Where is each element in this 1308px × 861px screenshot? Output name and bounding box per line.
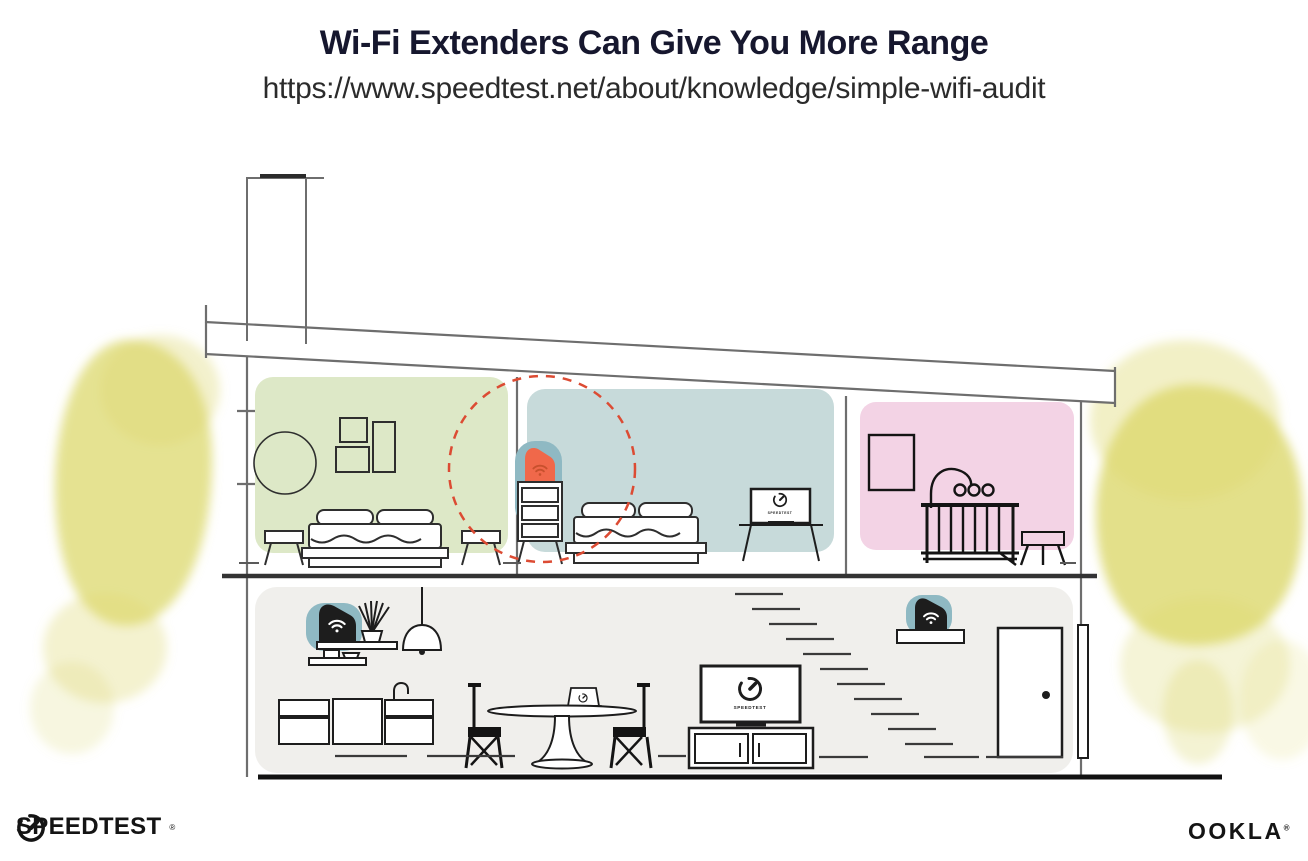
house-illustration: SPEEDTEST bbox=[0, 0, 1308, 861]
ookla-wordmark: OOKLA bbox=[1188, 818, 1284, 844]
tv-living-room: SPEEDTEST bbox=[689, 666, 813, 768]
shelf bbox=[897, 630, 964, 643]
tree-right bbox=[1090, 340, 1308, 764]
shelf bbox=[317, 642, 397, 649]
front-door bbox=[998, 628, 1062, 757]
infographic-canvas: Wi-Fi Extenders Can Give You More Range … bbox=[0, 0, 1308, 861]
speedtest-gauge-icon bbox=[16, 813, 46, 843]
wall-post bbox=[1078, 625, 1088, 758]
registered-mark: ® bbox=[1284, 823, 1292, 832]
tv-console bbox=[689, 728, 813, 768]
speedtest-logo: SPEEDTEST® bbox=[16, 813, 175, 841]
tv-screen-label: SPEEDTEST bbox=[768, 511, 793, 515]
ookla-logo: OOKLA® bbox=[1188, 818, 1292, 845]
registered-mark: ® bbox=[169, 823, 175, 832]
tree-left bbox=[30, 335, 220, 754]
door-knob bbox=[1042, 691, 1050, 699]
tv-screen-label: SPEEDTEST bbox=[734, 705, 767, 710]
